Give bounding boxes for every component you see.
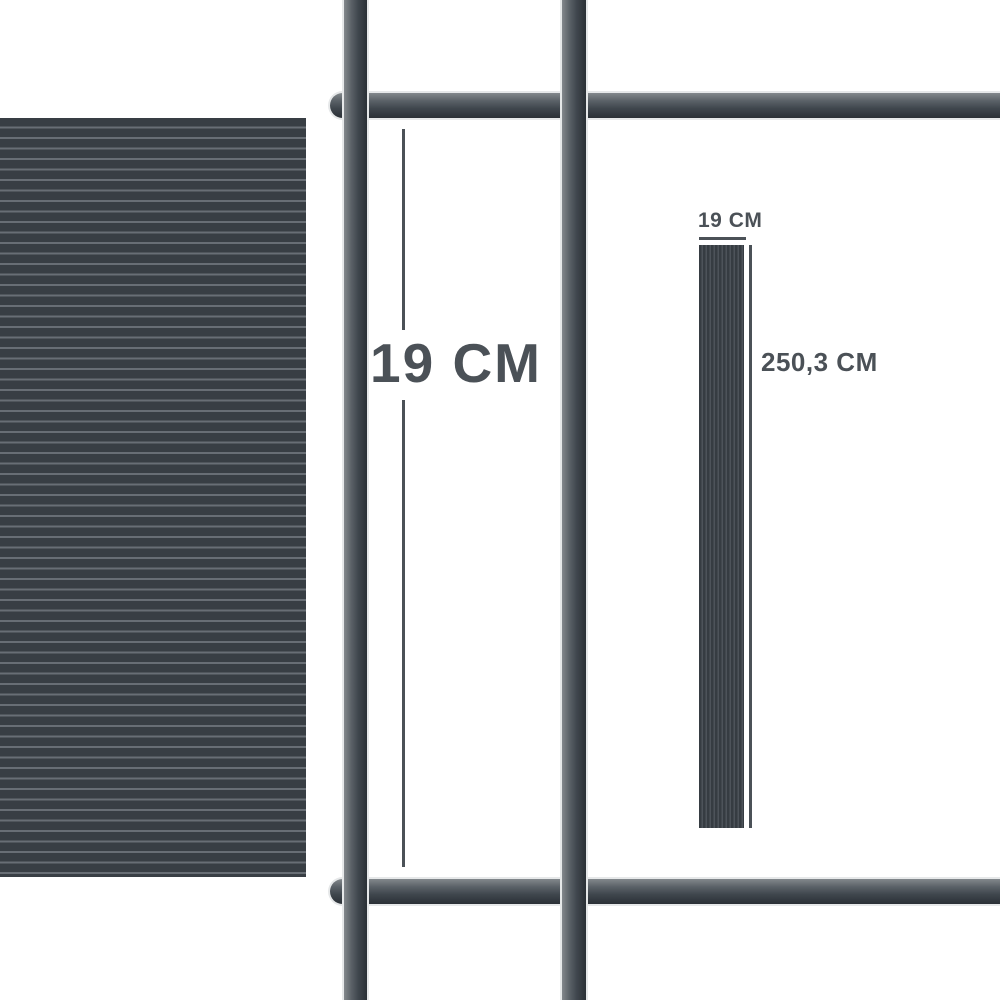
strip-width-label: 19 CM — [698, 210, 762, 231]
gap-height-dimension-line-upper — [402, 129, 405, 330]
fence-horizontal-bar-bottom — [330, 879, 1000, 904]
gap-height-dimension-line-lower — [402, 400, 405, 867]
strip-length-label: 250,3 CM — [761, 349, 878, 375]
gap-height-label: 19 CM — [370, 336, 542, 391]
fence-vertical-bar-left — [344, 0, 367, 1000]
strip-sample — [699, 245, 744, 828]
strip-length-dimension-line — [749, 245, 752, 828]
fence-vertical-bar-right — [562, 0, 586, 1000]
fence-dimension-illustration: 19 CM 19 CM 250,3 CM — [0, 0, 1000, 1000]
fence-horizontal-bar-top — [330, 93, 1000, 118]
strip-width-dimension-line — [699, 237, 746, 240]
privacy-strip-panel — [0, 118, 306, 877]
